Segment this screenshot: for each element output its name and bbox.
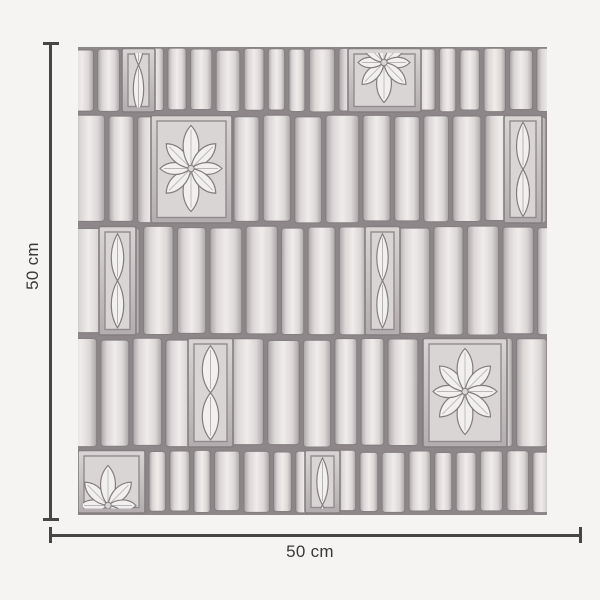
height-dimension-tick-top xyxy=(43,42,59,45)
width-dimension-tick-right xyxy=(579,527,582,543)
width-dimension-tick-left xyxy=(49,527,52,543)
wallpaper-swatch-pattern xyxy=(78,47,547,515)
height-dimension-tick-bottom xyxy=(43,518,59,521)
width-dimension-line xyxy=(49,534,582,537)
height-dimension-line xyxy=(49,43,52,521)
product-dimension-image: 50 cm 50 cm xyxy=(0,0,600,600)
height-dimension-label: 50 cm xyxy=(23,219,43,313)
width-dimension-label: 50 cm xyxy=(270,542,350,562)
